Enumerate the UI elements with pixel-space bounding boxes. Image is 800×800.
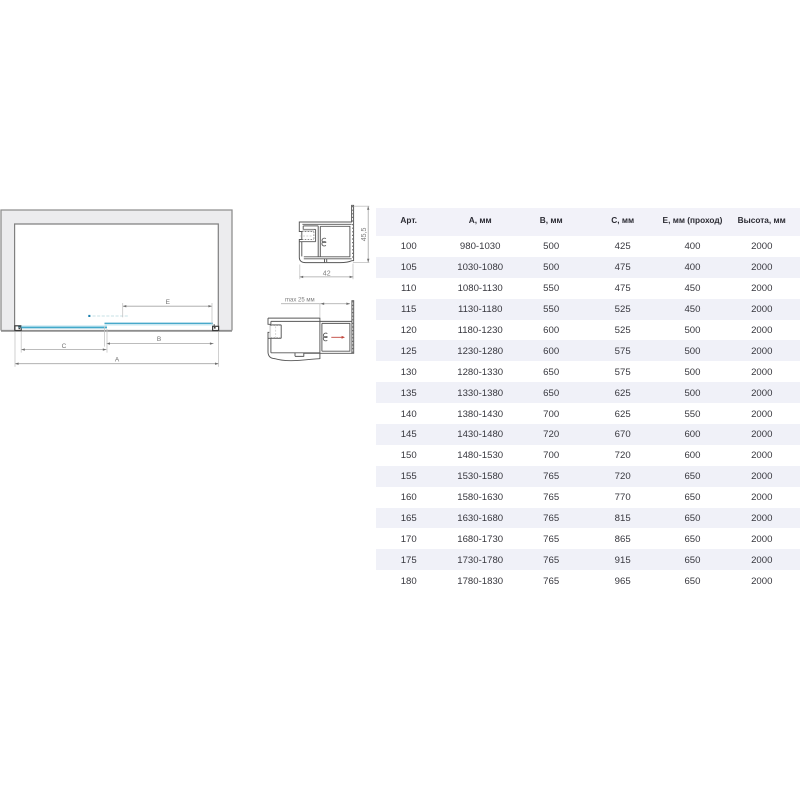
svg-text:B: B [157, 336, 161, 343]
svg-text:C: C [62, 343, 67, 350]
svg-text:42: 42 [323, 271, 331, 278]
svg-text:max 25 мм: max 25 мм [285, 298, 315, 304]
svg-text:45,5: 45,5 [361, 227, 368, 241]
svg-text:E: E [166, 299, 171, 306]
svg-text:A: A [115, 357, 120, 364]
